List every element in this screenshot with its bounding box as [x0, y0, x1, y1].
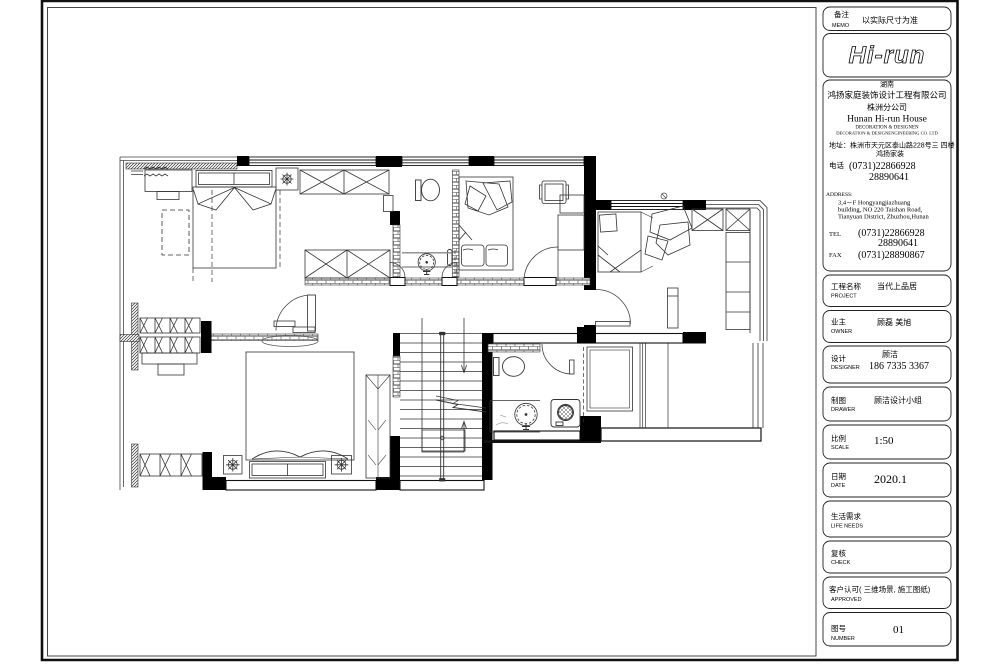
- svg-text:CHECK: CHECK: [831, 560, 851, 566]
- svg-text:制图: 制图: [831, 395, 846, 405]
- svg-text:(0731)28890867: (0731)28890867: [858, 250, 925, 261]
- svg-text:客户认可( 三维场景, 施工图纸): 客户认可( 三维场景, 施工图纸): [829, 584, 931, 594]
- svg-text:ADDRESS:: ADDRESS:: [826, 192, 853, 198]
- svg-text:3,4－F Hongyangjiazhuang: 3,4－F Hongyangjiazhuang: [838, 200, 911, 207]
- svg-text:28890641: 28890641: [878, 238, 918, 249]
- svg-text:备注: 备注: [834, 9, 849, 19]
- svg-text:01: 01: [893, 624, 904, 636]
- svg-text:复核: 复核: [831, 548, 846, 558]
- svg-text:业主: 业主: [831, 317, 846, 327]
- svg-text:2020.1: 2020.1: [874, 472, 907, 486]
- svg-text:顾磊 美旭: 顾磊 美旭: [877, 317, 911, 327]
- svg-text:FAX: FAX: [829, 252, 842, 259]
- svg-text:PROJECT: PROJECT: [831, 294, 857, 300]
- svg-text:鸿扬家装: 鸿扬家装: [876, 149, 904, 158]
- svg-text:顾洁设计小组: 顾洁设计小组: [874, 395, 922, 405]
- svg-text:设计: 设计: [831, 353, 846, 363]
- svg-text:顾洁: 顾洁: [882, 349, 898, 359]
- svg-text:OWNER: OWNER: [831, 329, 852, 335]
- svg-text:building, NO 220 Taishan Road,: building, NO 220 Taishan Road,: [838, 207, 923, 214]
- svg-text:MEMO: MEMO: [832, 23, 850, 29]
- svg-text:图号: 图号: [831, 624, 846, 633]
- svg-text:湖南: 湖南: [880, 80, 894, 89]
- svg-text:株洲分公司: 株洲分公司: [867, 102, 907, 112]
- svg-text:Tianyuan District, Zhuzhou,Hun: Tianyuan District, Zhuzhou,Hunan: [838, 214, 929, 221]
- svg-text:地址：株洲市天元区泰山路228号三 四楼: 地址：株洲市天元区泰山路228号三 四楼: [829, 141, 955, 150]
- svg-text:生活需求: 生活需求: [831, 511, 861, 521]
- svg-text:Hi-run: Hi-run: [849, 42, 926, 69]
- svg-text:日期: 日期: [831, 472, 846, 481]
- svg-text:186 7335 3367: 186 7335 3367: [869, 361, 929, 372]
- svg-text:电话: 电话: [829, 160, 844, 170]
- svg-text:LIFE NEEDS: LIFE NEEDS: [831, 524, 863, 530]
- svg-text:Hunan Hi-run House: Hunan Hi-run House: [847, 115, 927, 125]
- svg-text:DATE: DATE: [831, 483, 846, 489]
- svg-text:工程名称: 工程名称: [831, 281, 861, 291]
- svg-text:DESIGNER: DESIGNER: [831, 365, 860, 371]
- svg-text:鸿扬家庭装饰设计工程有限公司: 鸿扬家庭装饰设计工程有限公司: [827, 90, 946, 100]
- svg-text:DECORATION & DESIGNENGINEERING: DECORATION & DESIGNENGINEERING CO. LTD: [836, 131, 938, 136]
- svg-text:28890641: 28890641: [869, 172, 909, 183]
- svg-text:SCALE: SCALE: [831, 445, 849, 451]
- svg-text:DRAWER: DRAWER: [831, 407, 855, 413]
- svg-text:比例: 比例: [831, 433, 846, 443]
- svg-text:以实际尺寸为准: 以实际尺寸为准: [862, 15, 918, 25]
- svg-text:APPROVED: APPROVED: [831, 597, 862, 603]
- svg-text:TEL: TEL: [829, 231, 841, 238]
- svg-text:NUMBER: NUMBER: [831, 636, 855, 642]
- svg-text:1:50: 1:50: [874, 435, 894, 447]
- svg-text:当代上品居: 当代上品居: [877, 281, 917, 291]
- svg-text:(0731)22866928: (0731)22866928: [849, 161, 916, 172]
